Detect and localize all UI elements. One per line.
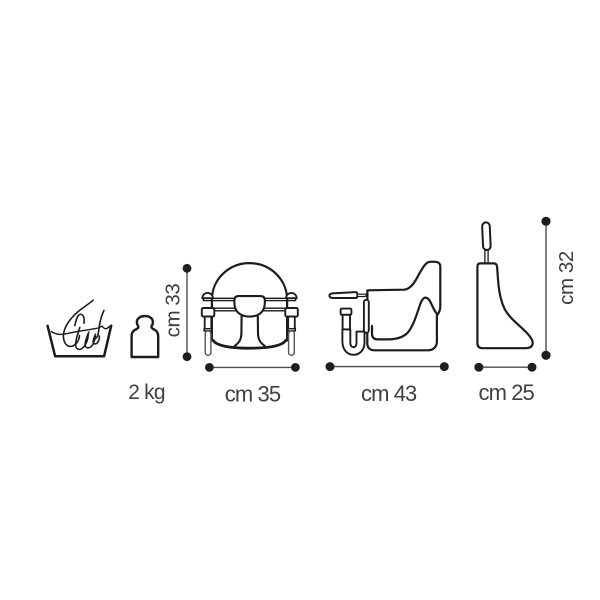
svg-text:cm 32: cm 32 bbox=[555, 251, 578, 305]
svg-text:2 kg: 2 kg bbox=[128, 381, 165, 404]
svg-text:cm 25: cm 25 bbox=[478, 380, 534, 405]
svg-text:cm 43: cm 43 bbox=[361, 381, 417, 406]
svg-text:cm 33: cm 33 bbox=[162, 284, 185, 338]
svg-text:cm 35: cm 35 bbox=[225, 382, 281, 407]
